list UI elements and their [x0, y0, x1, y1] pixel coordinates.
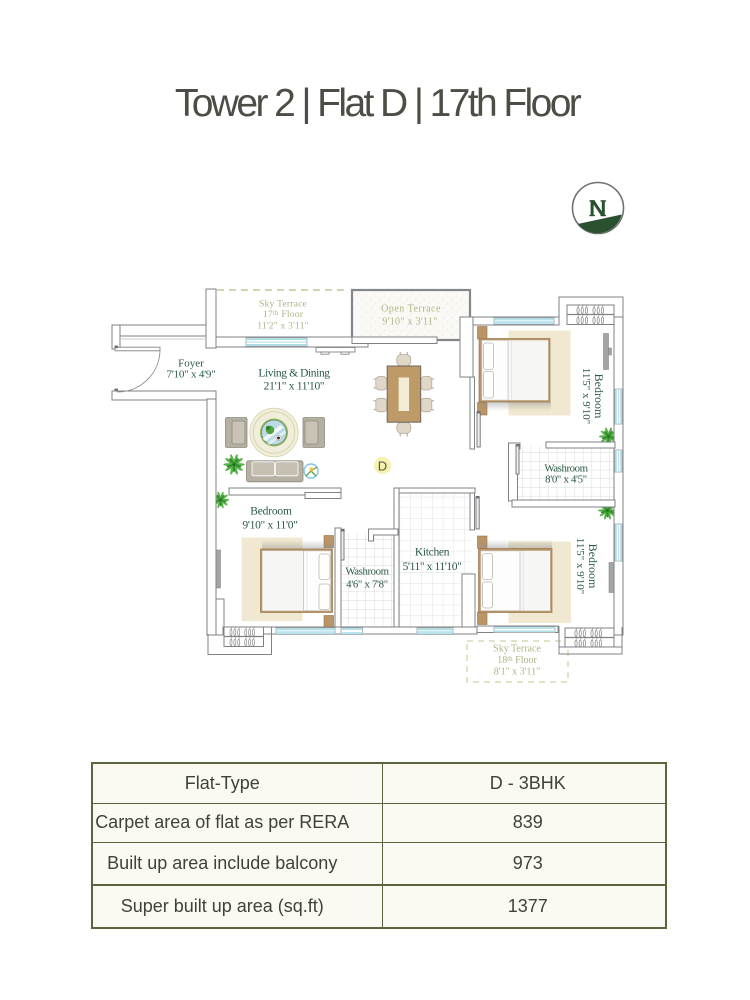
- svg-text:11'5" x 9'10": 11'5" x 9'10": [574, 538, 586, 595]
- svg-text:Sky Terrace: Sky Terrace: [259, 299, 307, 310]
- svg-text:D: D: [378, 459, 387, 474]
- svg-text:11'5" x 9'10": 11'5" x 9'10": [580, 368, 592, 425]
- svg-text:Living & Dining: Living & Dining: [258, 368, 330, 380]
- svg-text:Bedroom: Bedroom: [250, 506, 292, 518]
- svg-text:8'1" x 3'11": 8'1" x 3'11": [494, 667, 540, 678]
- svg-text:7'10" x 4'9": 7'10" x 4'9": [166, 369, 215, 381]
- svg-text:Bedroom: Bedroom: [586, 544, 600, 589]
- svg-text:4'6" x 7'8": 4'6" x 7'8": [346, 579, 388, 591]
- svg-text:Sky Terrace: Sky Terrace: [493, 644, 541, 655]
- svg-text:Kitchen: Kitchen: [415, 547, 450, 559]
- svg-text:11'2" x 3'11": 11'2" x 3'11": [257, 321, 309, 332]
- svg-text:Washroom: Washroom: [345, 566, 389, 578]
- svg-text:5'11" x 11'10": 5'11" x 11'10": [403, 561, 462, 573]
- svg-text:21'1" x 11'10": 21'1" x 11'10": [264, 381, 325, 393]
- svg-text:18th Floor: 18th Floor: [497, 655, 537, 666]
- svg-text:17th Floor: 17th Floor: [263, 309, 304, 320]
- svg-text:Open Terrace: Open Terrace: [381, 304, 441, 315]
- svg-text:Bedroom: Bedroom: [592, 374, 606, 419]
- svg-text:8'0" x 4'5": 8'0" x 4'5": [545, 474, 587, 486]
- svg-text:9'10" x 3'11": 9'10" x 3'11": [382, 317, 437, 328]
- svg-text:9'10" x 11'0": 9'10" x 11'0": [242, 520, 297, 532]
